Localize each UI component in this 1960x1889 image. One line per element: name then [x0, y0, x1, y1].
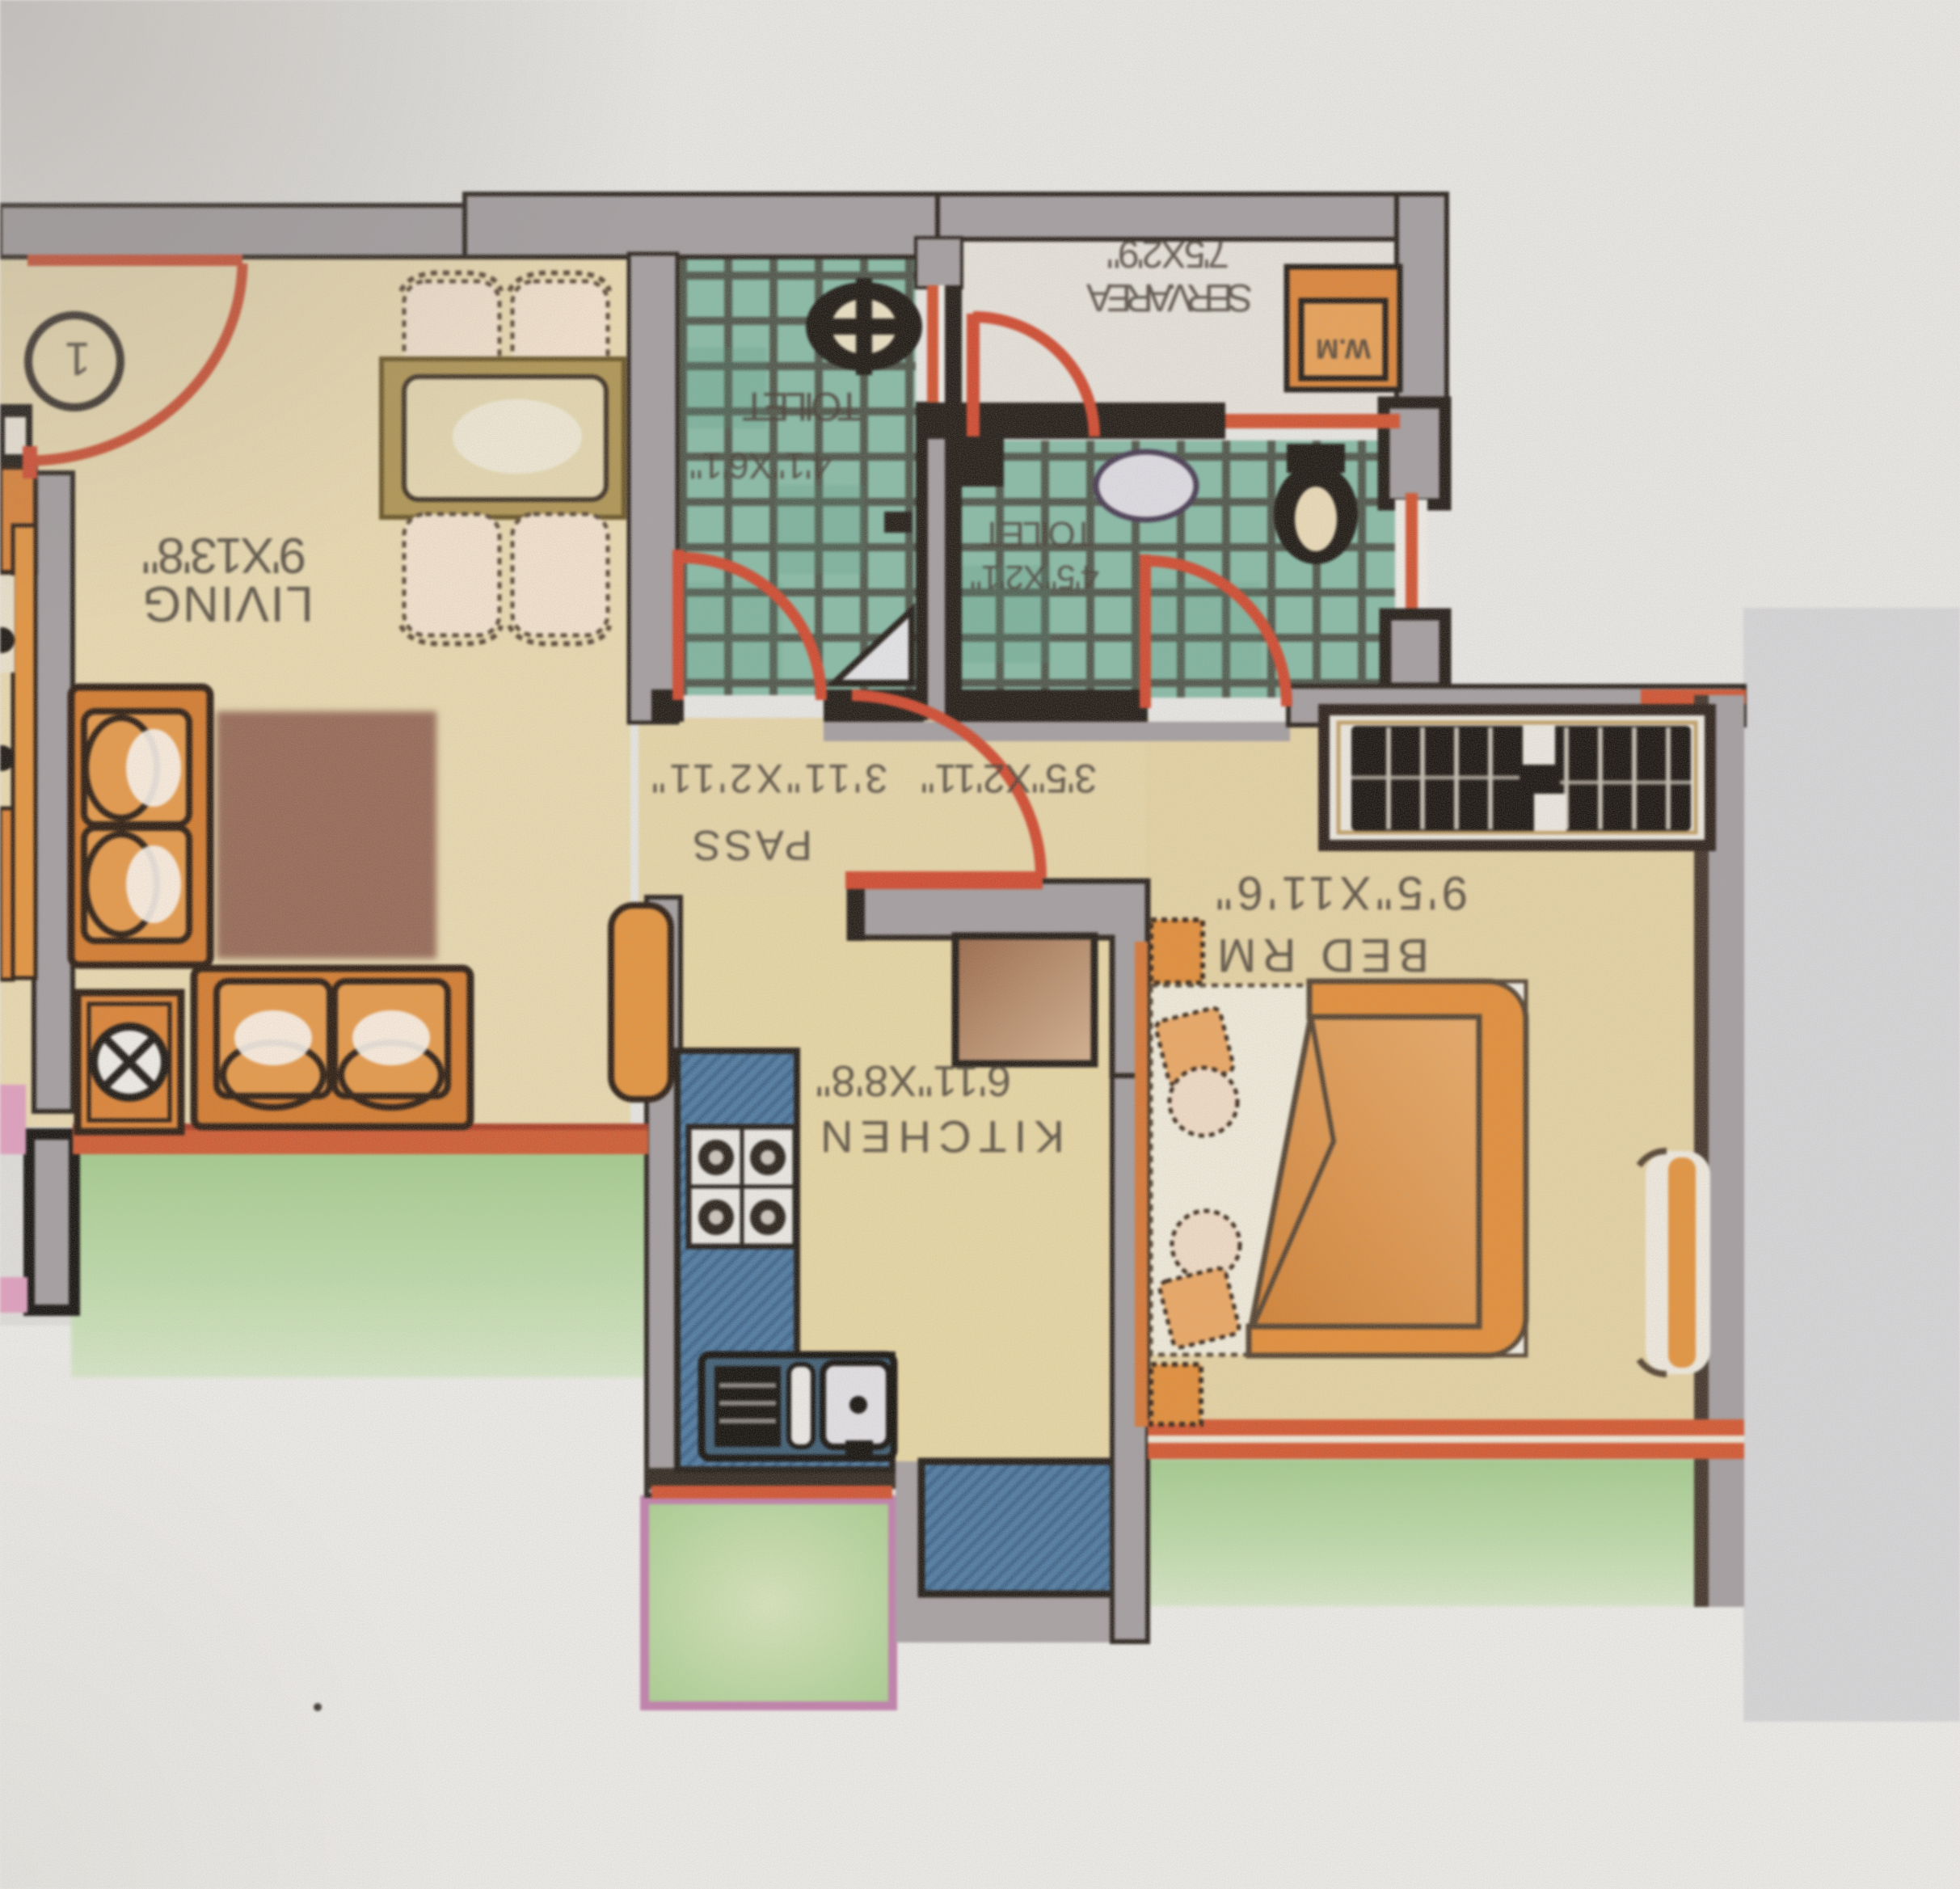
svg-text:W.M: W.M — [1316, 333, 1371, 364]
svg-text:6'11"X8'8": 6'11"X8'8" — [816, 1056, 1011, 1105]
svg-text:9'5"X11'6": 9'5"X11'6" — [1216, 866, 1468, 919]
